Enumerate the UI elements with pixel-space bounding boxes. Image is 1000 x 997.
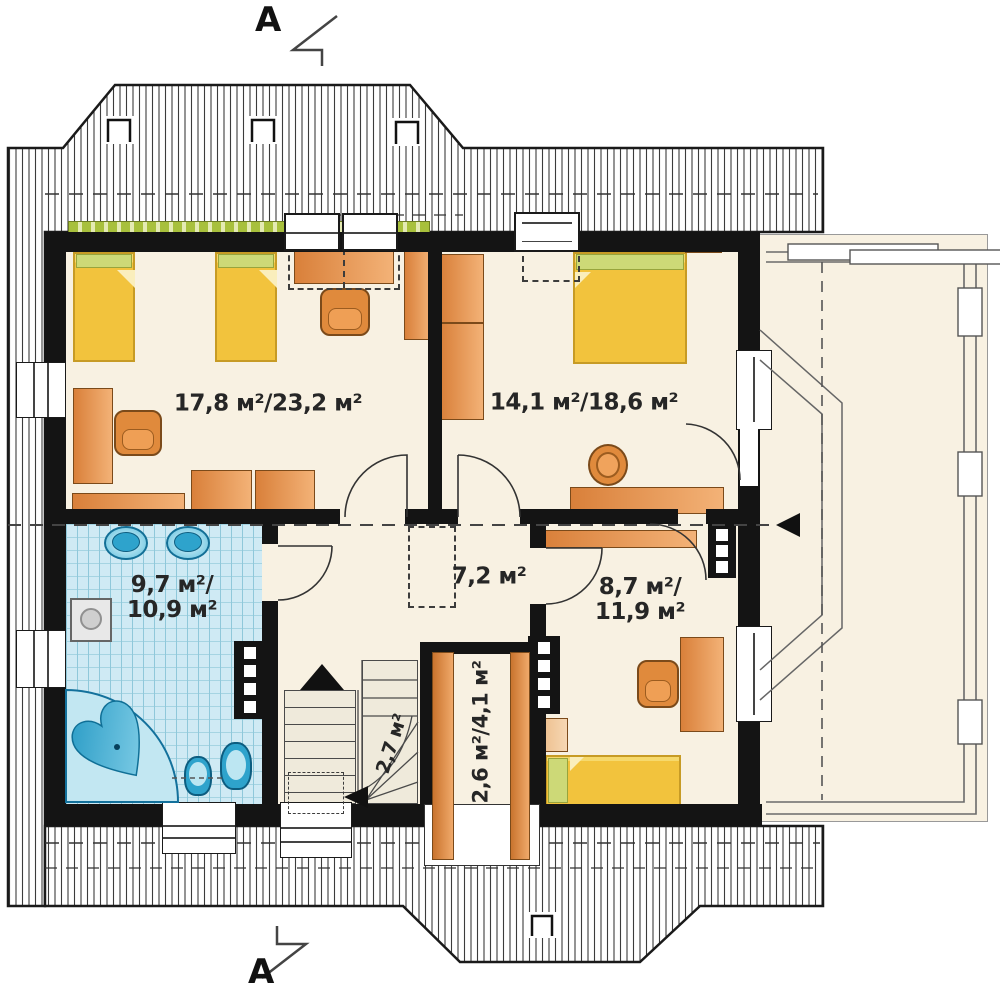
room-label-small-bedroom: 8,7 м²/ 11,9 м² xyxy=(595,575,685,625)
bathroom-area-line1: 9,7 м²/ xyxy=(127,573,217,598)
terrace-bay-outline-inner xyxy=(760,360,822,670)
floor-plan: A A 17,8 м²/23,2 м² 14,1 м²/18,6 м² 7,2 … xyxy=(0,0,1000,997)
stairs-down-arrow xyxy=(344,786,368,808)
door-arc-small-bedroom xyxy=(546,548,602,604)
terrace-rail-post-right-1 xyxy=(958,288,982,336)
section-arrow xyxy=(776,513,800,537)
stairs-up-arrow xyxy=(300,664,344,690)
door-arc-bedroom xyxy=(458,455,520,517)
room-label-hall: 7,2 м² xyxy=(452,565,527,590)
room-label-closet: 2,6 м²/4,1 м² xyxy=(470,661,493,804)
section-marker-bottom: A xyxy=(248,952,274,992)
terrace-rail-post-right-2 xyxy=(958,452,982,496)
overlay-layer xyxy=(0,0,1000,997)
door-arc-bathroom xyxy=(278,546,332,600)
room-label-children: 17,8 м²/23,2 м² xyxy=(174,392,362,417)
stairs-divider xyxy=(358,660,362,804)
section-marker-top: A xyxy=(255,0,281,40)
door-arc-balcony xyxy=(686,424,740,480)
door-arc-terrace xyxy=(650,524,706,580)
room-label-bedroom: 14,1 м²/18,6 м² xyxy=(490,391,678,416)
terrace-rail-post-top-2 xyxy=(850,250,1000,264)
small-bedroom-area-line2: 11,9 м² xyxy=(595,600,685,625)
door-arc-children-room xyxy=(345,455,407,517)
terrace-bay-outline-outer xyxy=(760,330,842,700)
terrace-rail-post-right-3 xyxy=(958,700,982,744)
bathroom-area-line2: 10,9 м² xyxy=(127,598,217,623)
room-label-bathroom: 9,7 м²/ 10,9 м² xyxy=(127,573,217,623)
small-bedroom-area-line1: 8,7 м²/ xyxy=(595,575,685,600)
bathtub-drain xyxy=(114,744,120,750)
